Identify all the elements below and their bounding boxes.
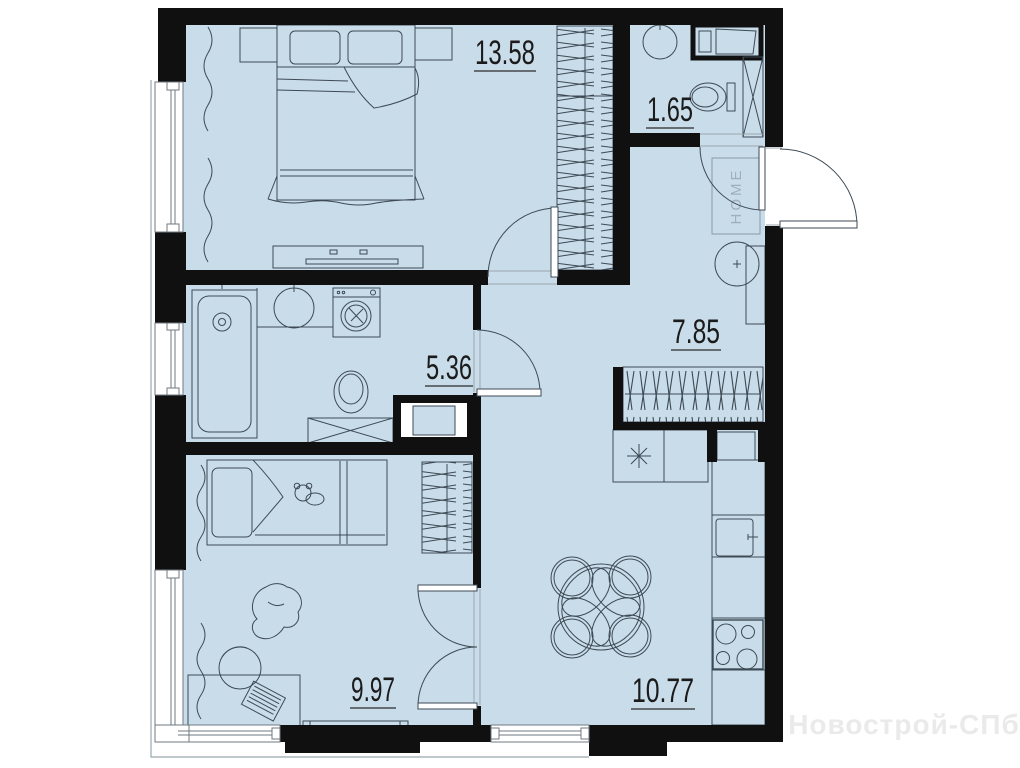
room-label-bathroom: 5.36: [426, 349, 472, 387]
floor-plan-drawing: HOME: [0, 0, 1020, 768]
room-label-wc: 1.65: [647, 91, 693, 129]
hallway-wardrobe: [623, 367, 763, 422]
room-label-kitchen: 10.77: [632, 672, 694, 710]
window-bathroom: [155, 323, 183, 395]
bedroom-wardrobe: [557, 26, 613, 270]
door-entrance: [780, 149, 857, 228]
window-bedroom: [155, 82, 183, 232]
built-in-niche: [393, 395, 475, 443]
window-kitchen: [491, 725, 589, 742]
kids-wardrobe: [422, 462, 472, 553]
floor-plan-page: HOME: [0, 0, 1020, 768]
doormat-text: HOME: [728, 168, 745, 225]
shower-tray: [693, 25, 761, 58]
room-label-kids: 9.97: [351, 671, 395, 709]
room-label-hallway: 7.85: [672, 313, 720, 351]
room-label-bedroom: 13.58: [475, 34, 535, 72]
watermark: Новострой-СПб: [788, 709, 1020, 740]
